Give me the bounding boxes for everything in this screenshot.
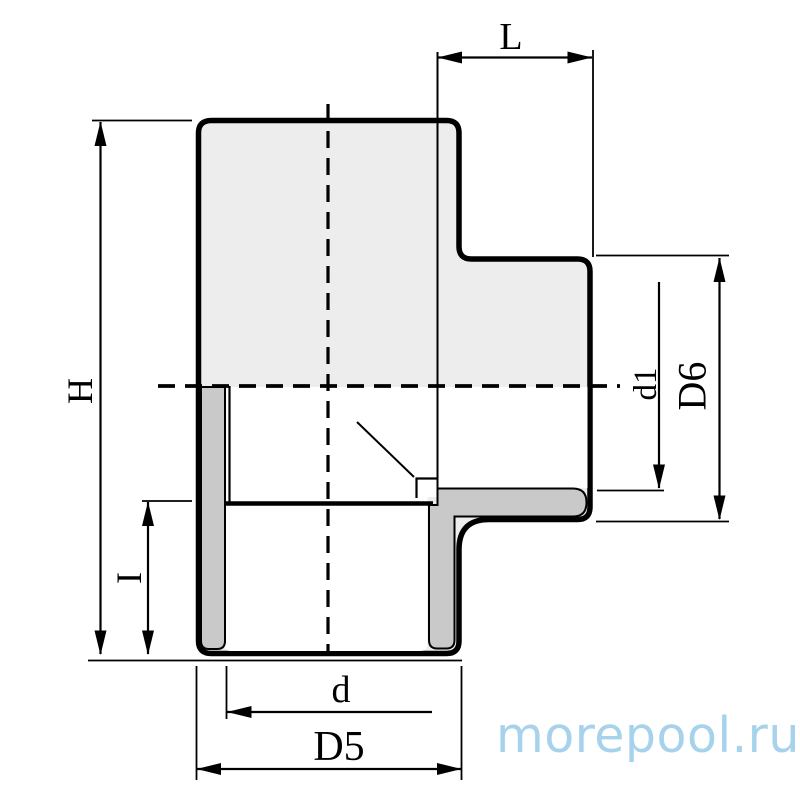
watermark-text: morepool.ru <box>496 707 800 764</box>
arrowhead-left <box>438 52 463 64</box>
drawing-canvas: L H I d <box>0 0 800 800</box>
arrowhead-top <box>95 122 107 147</box>
arrowhead-right <box>437 763 462 775</box>
wall-band-right <box>429 489 587 649</box>
tee-fitting-diagram: L H I d <box>0 0 800 800</box>
dim-d1: d1 <box>597 282 665 491</box>
arrowhead-bottom <box>142 631 154 656</box>
dim-d: d <box>227 666 433 719</box>
arrowhead-top <box>142 502 154 527</box>
arrowhead-right <box>568 52 593 64</box>
dim-D5: D5 <box>197 666 462 780</box>
dim-label-d1: d1 <box>628 368 664 401</box>
arrowhead-left <box>227 706 252 718</box>
arrowhead-bottom <box>653 465 665 490</box>
arrowhead-top <box>714 258 726 283</box>
arrowhead-left <box>197 763 222 775</box>
dim-label-D5: D5 <box>313 724 364 770</box>
dim-label-D6: D6 <box>670 362 715 411</box>
dim-label-I: I <box>109 572 149 584</box>
arrowhead-bottom <box>95 631 107 656</box>
dim-I: I <box>109 501 192 655</box>
dim-label-d: d <box>332 669 351 711</box>
dim-label-H: H <box>60 378 100 404</box>
dim-label-L: L <box>499 16 522 58</box>
wall-band-left <box>201 387 225 649</box>
arrowhead-bottom <box>714 496 726 521</box>
